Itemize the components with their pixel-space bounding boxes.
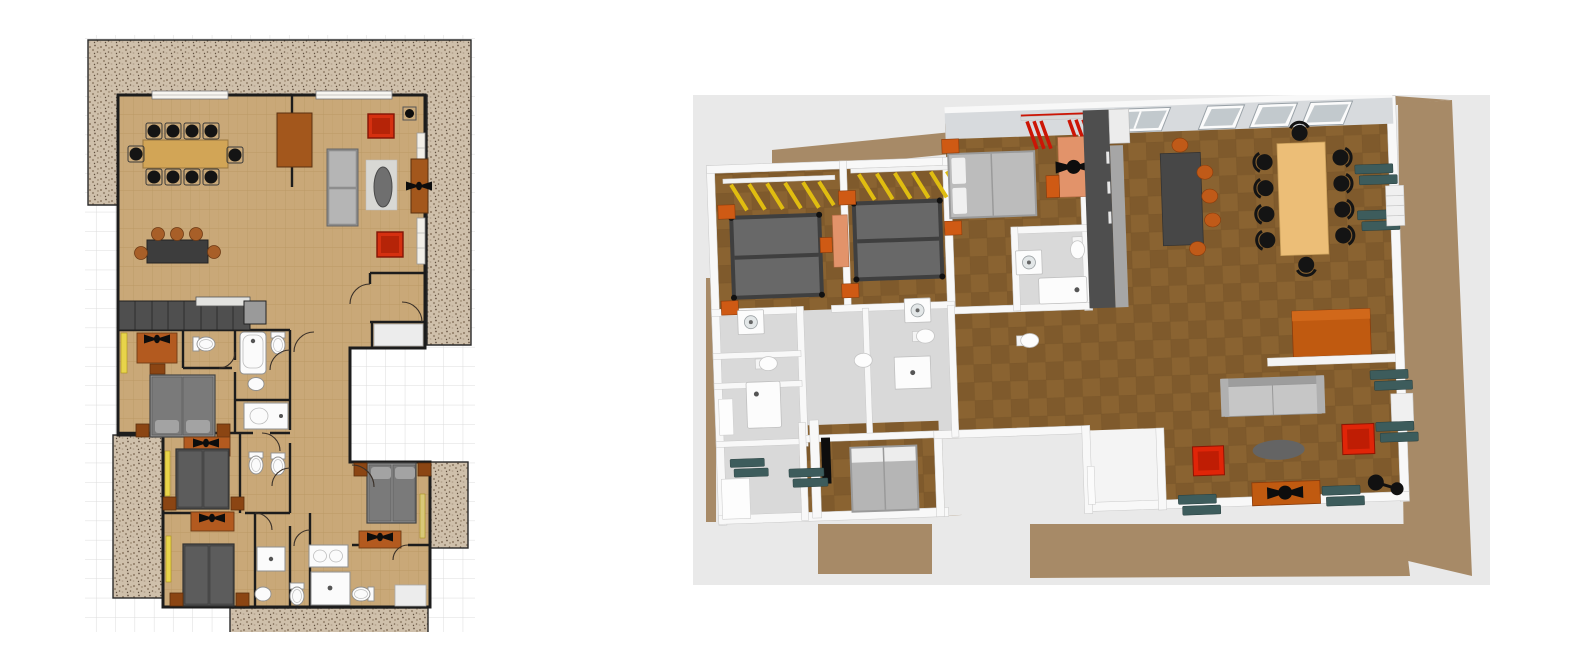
entry-mat xyxy=(374,324,423,346)
wall-tv xyxy=(821,437,832,483)
terrace-right-patch xyxy=(430,462,468,548)
desk xyxy=(832,215,849,267)
toilet xyxy=(193,337,215,351)
toilet xyxy=(249,452,263,474)
red-armchair-top xyxy=(368,114,394,138)
terrace-bottom xyxy=(230,608,428,632)
red-armchair-3d xyxy=(1342,424,1375,455)
bathtub xyxy=(1039,276,1088,304)
fridge xyxy=(1109,109,1130,144)
bath-mat xyxy=(395,585,426,606)
fridge xyxy=(244,301,266,324)
sofa-3d xyxy=(1220,375,1325,417)
washing-machine xyxy=(904,298,931,323)
red-armchair-bottom xyxy=(377,232,403,257)
toilet xyxy=(271,453,285,475)
sofa xyxy=(327,149,358,226)
vanity-tub xyxy=(244,403,288,429)
shower xyxy=(257,547,285,571)
washing-machine xyxy=(1016,250,1043,275)
sink xyxy=(854,353,872,368)
sink-counter xyxy=(719,399,734,435)
bathtub xyxy=(746,381,782,428)
floor-plan-2d[interactable] xyxy=(85,35,475,632)
closet xyxy=(721,478,750,519)
design-app-canvas: { "app": { "description_left_panel": "2D… xyxy=(0,0,1596,672)
deck-bottom-left xyxy=(818,524,932,574)
toilet xyxy=(352,587,374,601)
washing-machine xyxy=(737,310,764,335)
terrace-left xyxy=(113,435,163,598)
tv-cabinet-3d xyxy=(1252,480,1321,505)
courtyard-notch xyxy=(942,434,1087,516)
entry-door xyxy=(1087,466,1095,504)
sideboard-orange xyxy=(1292,309,1372,358)
sink xyxy=(255,587,271,601)
oval-coffee-table xyxy=(374,167,392,207)
desk-chair xyxy=(1046,175,1060,197)
deck-bottom xyxy=(1030,524,1410,578)
double-vanity xyxy=(309,545,348,567)
floor-entry xyxy=(1089,428,1164,508)
floor-bath-mid xyxy=(802,305,956,440)
floor-plan-3d-view[interactable] xyxy=(693,95,1490,585)
sideboard xyxy=(277,113,312,167)
toilet xyxy=(290,583,304,605)
sink xyxy=(248,378,264,391)
red-armchair-3d xyxy=(1192,446,1224,476)
bathtub xyxy=(240,332,266,374)
wardrobe-yellow xyxy=(121,333,127,373)
shower-large xyxy=(311,572,350,605)
kitchen-counter xyxy=(119,297,266,330)
shelf-right-2 xyxy=(417,218,425,264)
shower xyxy=(894,356,931,389)
